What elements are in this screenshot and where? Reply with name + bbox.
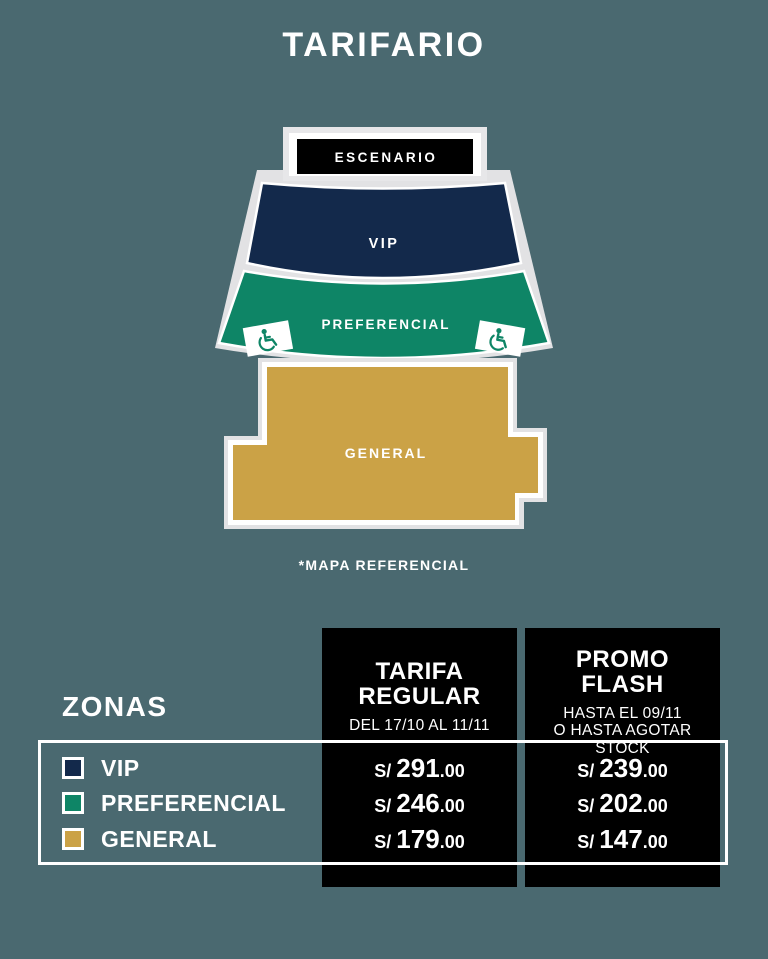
tarifario-page: TARIFARIO ESCENARIO VIP PREFERENCIAL (0, 0, 768, 959)
price-preferencial-regular: S/246.00 (322, 788, 517, 823)
table-row-general: GENERAL S/179.00 S/147.00 (0, 824, 768, 855)
zone-row-label: PREFERENCIAL (101, 788, 286, 819)
zones-heading: ZONAS (62, 691, 168, 723)
zone-row-label: VIP (101, 753, 140, 784)
preferencial-color-swatch (62, 792, 84, 814)
zone-row-label: GENERAL (101, 824, 217, 855)
stage-label: ESCENARIO (335, 150, 438, 165)
zone-vip-label: VIP (369, 236, 400, 252)
price-vip-regular: S/291.00 (322, 753, 517, 788)
venue-map: ESCENARIO VIP PREFERENCIAL (0, 100, 768, 570)
price-vip-promo: S/239.00 (525, 753, 720, 788)
price-general-promo: S/147.00 (525, 824, 720, 859)
table-row-preferencial: PREFERENCIAL S/246.00 S/202.00 (0, 788, 768, 819)
column-title: TARIFA REGULAR (322, 659, 517, 710)
zone-vip-shape (247, 183, 521, 278)
table-row-vip: VIP S/291.00 S/239.00 (0, 753, 768, 784)
zone-general-label: GENERAL (345, 445, 427, 461)
column-title: PROMO FLASH (525, 647, 720, 698)
zone-general-shape (233, 367, 538, 520)
page-title: TARIFARIO (0, 26, 768, 65)
price-preferencial-promo: S/202.00 (525, 788, 720, 823)
general-color-swatch (62, 828, 84, 850)
price-general-regular: S/179.00 (322, 824, 517, 859)
vip-color-swatch (62, 757, 84, 779)
map-reference-note: *MAPA REFERENCIAL (0, 557, 768, 573)
zone-preferencial-label: PREFERENCIAL (321, 317, 450, 332)
column-subtitle: DEL 17/10 AL 11/11 (322, 717, 517, 734)
